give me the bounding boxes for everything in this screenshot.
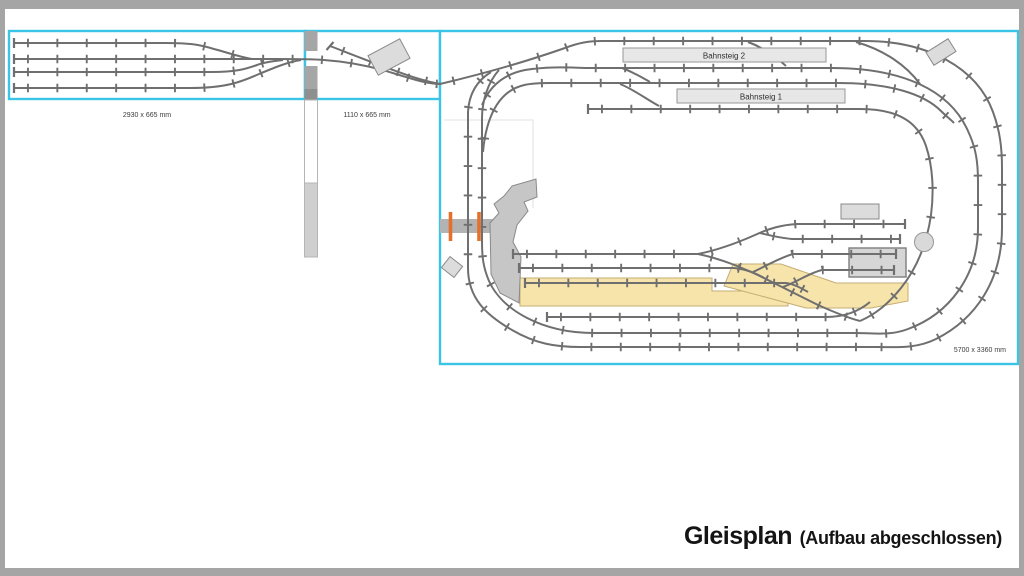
platform-2-label: Bahnsteig 2 xyxy=(703,52,746,61)
page-title: Gleisplan xyxy=(684,522,792,550)
track-plan-drawing: Bahnsteig 2 Bahnsteig 1 2930 x 665 mm 11… xyxy=(0,0,1024,576)
frame-bottom xyxy=(0,568,1024,576)
wall-segment xyxy=(305,31,318,51)
frame-top xyxy=(0,0,1024,9)
wall-segment xyxy=(305,89,318,100)
dimension-label-connector: 1110 x 665 mm xyxy=(343,112,390,119)
wall-segment xyxy=(305,66,318,89)
engine-shed xyxy=(849,248,906,277)
wall-segment xyxy=(305,100,318,183)
frame-right xyxy=(1019,0,1024,576)
dimension-label-fiddle-yard: 2930 x 665 mm xyxy=(123,112,171,119)
water-tower xyxy=(915,233,934,252)
platform-1-label: Bahnsteig 1 xyxy=(740,93,783,102)
page-title-annotation: (Aufbau abgeschlossen) xyxy=(800,528,1003,548)
frame-left xyxy=(0,0,5,576)
goods-building xyxy=(841,204,879,219)
track-plan-page: Bahnsteig 2 Bahnsteig 1 2930 x 665 mm 11… xyxy=(0,0,1024,576)
dimension-label-main-board: 5700 x 3360 mm xyxy=(954,347,1006,354)
wall-segment xyxy=(305,183,318,257)
